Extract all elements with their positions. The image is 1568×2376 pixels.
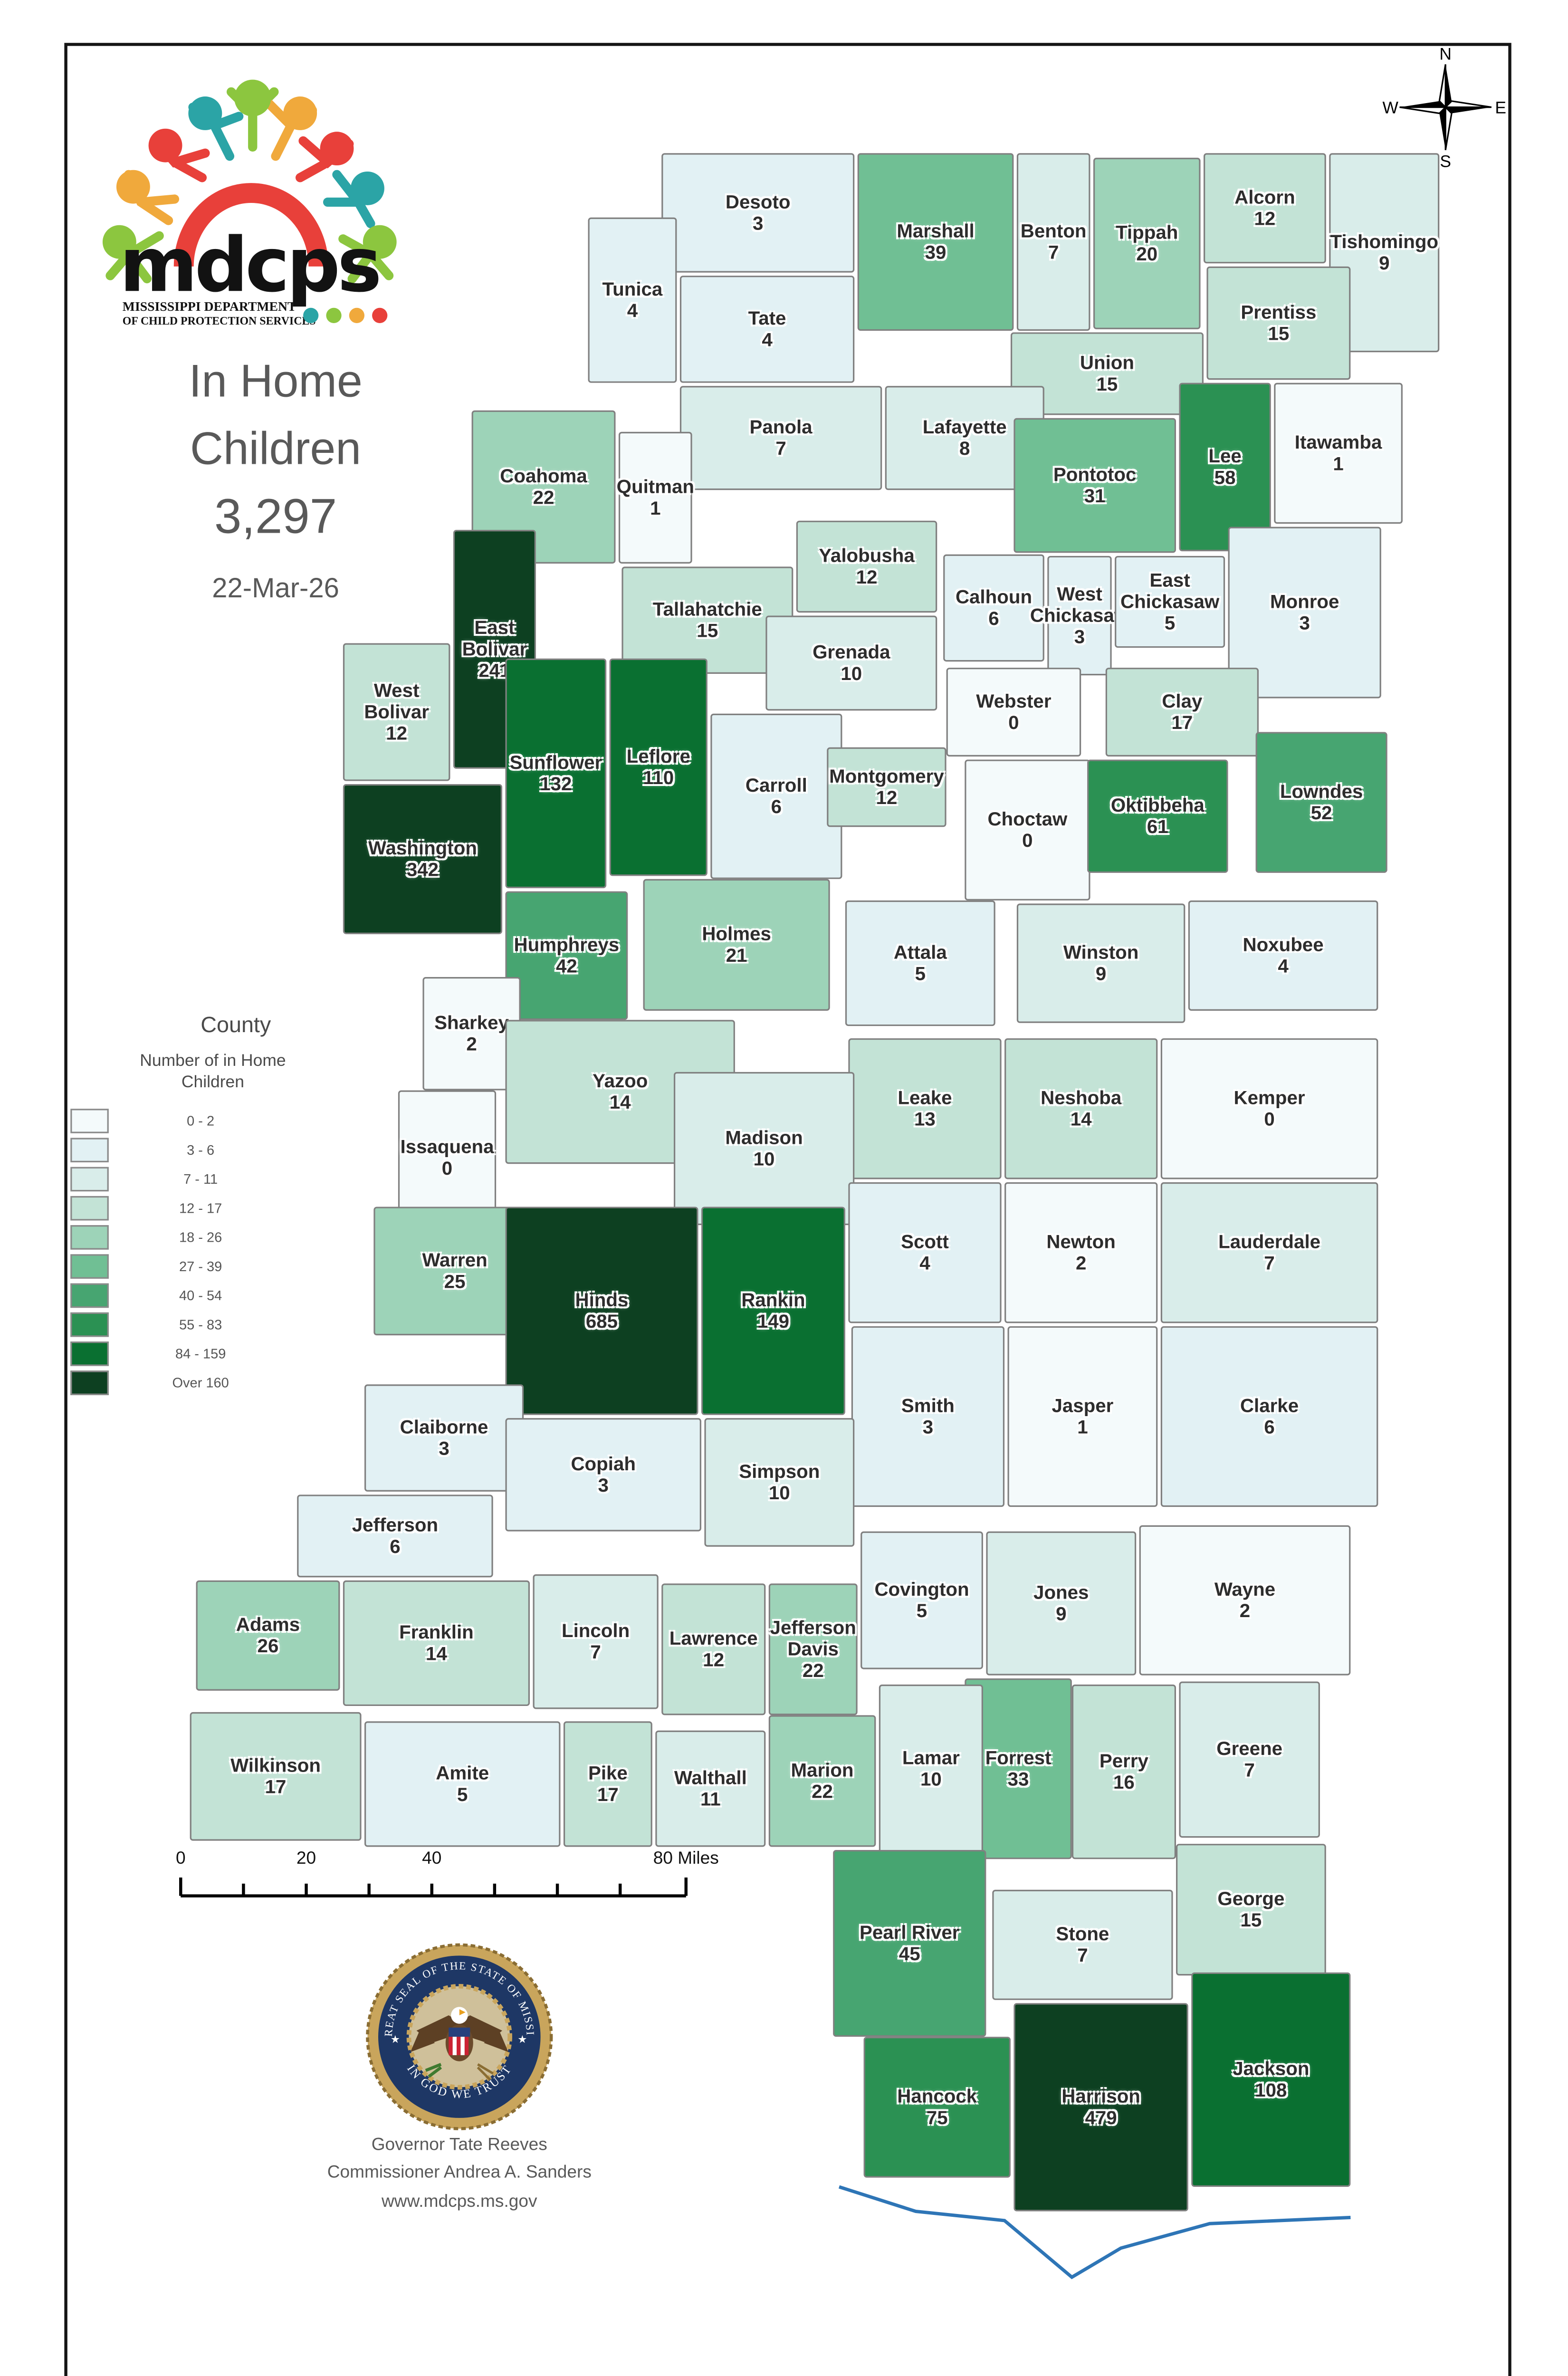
- county-label: Kemper0: [1234, 1087, 1305, 1130]
- county-label: Rankin149: [741, 1289, 805, 1332]
- county-name: Monroe: [1270, 591, 1339, 613]
- county-label: Sharkey2: [434, 1012, 509, 1055]
- county-value: 15: [1080, 374, 1134, 395]
- county-name: Neshoba: [1041, 1087, 1121, 1109]
- county-covington: Covington5: [860, 1532, 983, 1669]
- legend-row: 12 - 17: [67, 1194, 343, 1223]
- county-label: George15: [1217, 1888, 1284, 1931]
- county-lincoln: Lincoln7: [533, 1574, 658, 1709]
- county-value: 108: [1233, 2079, 1309, 2101]
- county-attala: Attala5: [845, 901, 995, 1026]
- legend-swatch-icon: [70, 1255, 109, 1279]
- county-name: Tishomingo: [1330, 231, 1439, 253]
- county-label: Webster0: [976, 690, 1051, 733]
- county-value: 3: [1270, 613, 1339, 634]
- county-east-chickasaw: East Chickasaw5: [1115, 556, 1225, 648]
- county-value: 0: [987, 830, 1067, 852]
- county-name: Oktibbeha: [1111, 795, 1205, 816]
- county-walthall: Walthall11: [655, 1731, 765, 1847]
- county-label: Tunica4: [602, 279, 663, 322]
- county-wayne: Wayne2: [1139, 1525, 1351, 1676]
- county-label: Carroll6: [746, 775, 807, 818]
- county-value: 6: [1240, 1417, 1299, 1438]
- county-label: Lauderdale7: [1218, 1231, 1320, 1274]
- county-value: 5: [436, 1784, 489, 1805]
- county-label: West Bolivar12: [344, 680, 449, 744]
- county-label: Forrest33: [985, 1747, 1052, 1790]
- county-neshoba: Neshoba14: [1004, 1038, 1157, 1179]
- county-value: 12: [819, 566, 915, 588]
- legend-subtitle-1: Number of in Home: [140, 1052, 286, 1071]
- scale-bar: 0 20 40 80 Miles: [172, 1850, 708, 1920]
- county-value: 14: [593, 1092, 648, 1113]
- county-label: Issaquena0: [400, 1136, 494, 1179]
- county-label: Sunflower132: [509, 752, 602, 795]
- county-label: East Chickasaw5: [1116, 570, 1224, 634]
- county-label: Walthall11: [674, 1767, 747, 1810]
- county-value: 4: [901, 1253, 949, 1274]
- county-clay: Clay17: [1106, 668, 1259, 757]
- county-label: Humphreys42: [514, 934, 620, 977]
- legend-class-label: Over 160: [109, 1375, 293, 1390]
- county-name: Amite: [436, 1763, 489, 1784]
- county-jefferson-davis: Jefferson Davis22: [769, 1583, 858, 1715]
- county-name: East Bolivar: [455, 617, 535, 660]
- county-label: Simpson10: [739, 1461, 820, 1504]
- legend-row: 0 - 2: [67, 1107, 343, 1136]
- scale-label-40: 40: [422, 1850, 441, 1868]
- county-name: Humphreys: [514, 934, 620, 956]
- county-noxubee: Noxubee4: [1188, 901, 1378, 1011]
- legend-row: 55 - 83: [67, 1310, 343, 1339]
- county-label: Holmes21: [702, 923, 771, 966]
- county-label: Newton2: [1046, 1231, 1115, 1274]
- scale-label-20: 20: [296, 1850, 316, 1868]
- county-name: Alcorn: [1234, 187, 1295, 208]
- county-newton: Newton2: [1004, 1182, 1157, 1323]
- county-name: Lowndes: [1280, 781, 1363, 803]
- county-west-chickasaw: West Chickasaw3: [1047, 556, 1111, 675]
- county-name: Wayne: [1214, 1579, 1275, 1600]
- county-value: 2: [434, 1034, 509, 1055]
- county-value: 42: [514, 956, 620, 977]
- county-label: Scott4: [901, 1231, 949, 1274]
- county-name: Jones: [1033, 1582, 1089, 1603]
- county-marshall: Marshall39: [858, 153, 1014, 331]
- county-name: Coahoma: [500, 466, 587, 487]
- county-name: Leflore: [627, 746, 690, 767]
- county-label: Yazoo14: [593, 1071, 648, 1113]
- county-lawrence: Lawrence12: [661, 1583, 765, 1715]
- county-jackson: Jackson108: [1191, 1973, 1350, 2187]
- county-label: Jefferson6: [352, 1514, 438, 1557]
- county-west-bolivar: West Bolivar12: [343, 643, 450, 781]
- county-value: 58: [1208, 467, 1241, 489]
- county-name: George: [1217, 1888, 1284, 1910]
- county-label: Covington5: [874, 1579, 969, 1622]
- county-value: 132: [509, 773, 602, 795]
- county-label: Grenada10: [813, 642, 890, 684]
- county-value: 17: [588, 1784, 628, 1805]
- county-name: Hinds: [575, 1289, 629, 1311]
- county-marion: Marion22: [769, 1715, 876, 1847]
- county-name: Lafayette: [923, 417, 1007, 438]
- county-label: Monroe3: [1270, 591, 1339, 634]
- county-label: Pontotoc31: [1053, 464, 1137, 507]
- county-label: Attala5: [894, 942, 947, 985]
- county-label: Choctaw0: [987, 809, 1067, 852]
- county-label: Calhoun6: [956, 586, 1032, 629]
- county-value: 0: [1234, 1109, 1305, 1130]
- county-name: Jefferson: [352, 1514, 438, 1536]
- county-leake: Leake13: [848, 1038, 1001, 1179]
- scale-label-0: 0: [176, 1850, 186, 1868]
- county-value: 10: [902, 1769, 960, 1790]
- county-issaquena: Issaquena0: [398, 1091, 496, 1226]
- county-label: Quitman1: [617, 476, 694, 519]
- county-label: Oktibbeha61: [1111, 795, 1205, 838]
- county-name: Leake: [898, 1087, 952, 1109]
- legend-row: 18 - 26: [67, 1223, 343, 1252]
- poster-page: mdcps MISSISSIPPI DEPARTMENT OF CHILD PR…: [0, 0, 1568, 2376]
- county-name: Washington: [368, 838, 477, 859]
- county-itawamba: Itawamba1: [1274, 383, 1403, 524]
- county-oktibbeha: Oktibbeha61: [1087, 759, 1228, 872]
- county-name: Tunica: [602, 279, 663, 300]
- legend-swatch-icon: [70, 1284, 109, 1308]
- county-name: Panola: [749, 417, 812, 438]
- county-label: Tallahatchie15: [653, 599, 762, 642]
- legend-class-label: 55 - 83: [109, 1317, 293, 1332]
- legend-swatch-icon: [70, 1313, 109, 1337]
- county-value: 10: [725, 1149, 803, 1170]
- county-name: Noxubee: [1243, 934, 1323, 956]
- county-madison: Madison10: [674, 1072, 854, 1225]
- county-name: Rankin: [741, 1289, 805, 1311]
- county-tate: Tate4: [680, 276, 854, 383]
- county-value: 22: [770, 1660, 856, 1681]
- state-seal: THE GREAT SEAL OF THE STATE OF MISSISSIP…: [364, 1942, 555, 2132]
- county-value: 12: [829, 787, 944, 808]
- county-label: Harrison479: [1061, 2086, 1140, 2128]
- county-quitman: Quitman1: [619, 432, 692, 564]
- county-label: Franklin14: [399, 1622, 474, 1665]
- county-name: Calhoun: [956, 586, 1032, 608]
- svg-text:★: ★: [391, 2033, 400, 2045]
- county-name: Perry: [1100, 1750, 1148, 1772]
- county-label: Clarke6: [1240, 1395, 1299, 1438]
- county-label: Washington342: [368, 838, 477, 881]
- county-label: Madison10: [725, 1127, 803, 1170]
- county-label: Lee58: [1208, 446, 1241, 489]
- legend-row: 7 - 11: [67, 1165, 343, 1194]
- county-value: 5: [874, 1600, 969, 1622]
- county-name: Wilkinson: [230, 1755, 321, 1776]
- county-label: Leake13: [898, 1087, 952, 1130]
- county-perry: Perry16: [1072, 1685, 1176, 1859]
- county-pearl-river: Pearl River45: [833, 1850, 986, 2037]
- county-label: Pike17: [588, 1763, 628, 1805]
- county-name: Yalobusha: [819, 545, 915, 566]
- legend-class-label: 18 - 26: [109, 1230, 293, 1245]
- county-label: Clay17: [1162, 690, 1202, 733]
- county-rankin: Rankin149: [701, 1207, 845, 1415]
- county-simpson: Simpson10: [704, 1418, 854, 1547]
- county-value: 3: [901, 1417, 955, 1438]
- county-name: Tate: [748, 308, 786, 329]
- county-name: Greene: [1216, 1738, 1282, 1760]
- scale-label-80: 80 Miles: [653, 1850, 719, 1868]
- county-value: 11: [674, 1789, 747, 1810]
- county-value: 15: [1241, 323, 1316, 345]
- county-humphreys: Humphreys42: [505, 891, 628, 1020]
- county-label: Desoto3: [726, 192, 791, 234]
- county-copiah: Copiah3: [505, 1418, 701, 1531]
- county-value: 6: [956, 608, 1032, 629]
- county-name: Benton: [1021, 220, 1087, 242]
- county-value: 3: [1030, 626, 1129, 648]
- county-label: Union15: [1080, 352, 1134, 395]
- county-name: Grenada: [813, 642, 890, 663]
- legend-class-label: 27 - 39: [109, 1259, 293, 1274]
- county-name: Hancock: [897, 2086, 977, 2107]
- county-name: Covington: [874, 1579, 969, 1600]
- county-lauderdale: Lauderdale7: [1161, 1182, 1378, 1323]
- county-value: 9: [1033, 1603, 1089, 1625]
- county-name: Union: [1080, 352, 1134, 374]
- county-stone: Stone7: [992, 1890, 1173, 2000]
- county-label: Lowndes52: [1280, 781, 1363, 824]
- county-label: Wayne2: [1214, 1579, 1275, 1622]
- county-label: Stone7: [1056, 1924, 1109, 1966]
- county-tunica: Tunica4: [588, 218, 677, 383]
- county-value: 2: [1046, 1253, 1115, 1274]
- county-value: 5: [1116, 613, 1224, 634]
- county-panola: Panola7: [680, 386, 882, 490]
- county-value: 10: [813, 663, 890, 684]
- county-value: 5: [894, 963, 947, 985]
- county-label: Panola7: [749, 417, 812, 460]
- county-label: Claiborne3: [400, 1417, 488, 1459]
- county-name: Jefferson Davis: [770, 1617, 856, 1660]
- footer-website: www.mdcps.ms.gov: [229, 2188, 689, 2216]
- county-label: Jones9: [1033, 1582, 1089, 1625]
- legend-row: 27 - 39: [67, 1252, 343, 1281]
- county-label: Tippah20: [1116, 222, 1178, 265]
- county-value: 52: [1280, 803, 1363, 824]
- county-name: Adams: [236, 1614, 300, 1636]
- county-value: 149: [741, 1311, 805, 1332]
- county-label: Montgomery12: [829, 766, 944, 808]
- county-name: Lee: [1208, 446, 1241, 467]
- legend-row: 3 - 6: [67, 1136, 343, 1165]
- county-label: Benton7: [1021, 220, 1087, 263]
- county-value: 26: [236, 1636, 300, 1657]
- county-name: Pike: [588, 1763, 628, 1784]
- county-adams: Adams26: [196, 1581, 340, 1691]
- county-calhoun: Calhoun6: [943, 555, 1044, 662]
- county-amite: Amite5: [364, 1721, 561, 1847]
- county-value: 16: [1100, 1772, 1148, 1793]
- county-clarke: Clarke6: [1161, 1326, 1378, 1507]
- county-label: Jackson108: [1233, 2058, 1309, 2101]
- county-name: Choctaw: [987, 809, 1067, 830]
- county-value: 15: [653, 620, 762, 642]
- county-label: Leflore110: [627, 746, 690, 788]
- county-name: Kemper: [1234, 1087, 1305, 1109]
- county-pike: Pike17: [564, 1721, 652, 1847]
- county-value: 3: [726, 213, 791, 234]
- footer-governor: Governor Tate Reeves: [229, 2132, 689, 2160]
- county-value: 685: [575, 1311, 629, 1332]
- county-grenada: Grenada10: [765, 616, 937, 711]
- county-name: Prentiss: [1241, 302, 1316, 323]
- county-label: Copiah3: [571, 1453, 636, 1496]
- legend-title: County: [129, 1014, 343, 1038]
- county-value: 22: [791, 1781, 854, 1802]
- county-value: 10: [739, 1483, 820, 1504]
- county-name: Pontotoc: [1053, 464, 1137, 485]
- county-name: East Chickasaw: [1116, 570, 1224, 613]
- county-leflore: Leflore110: [610, 659, 708, 876]
- county-label: Itawamba1: [1295, 432, 1382, 475]
- county-label: Greene7: [1216, 1738, 1282, 1781]
- footer-commissioner: Commissioner Andrea A. Sanders: [229, 2160, 689, 2188]
- county-value: 12: [344, 723, 449, 744]
- county-name: Tippah: [1116, 222, 1178, 243]
- county-value: 0: [400, 1158, 494, 1179]
- county-name: Yazoo: [593, 1071, 648, 1092]
- county-jefferson: Jefferson6: [297, 1495, 493, 1577]
- legend-class-label: 12 - 17: [109, 1201, 293, 1216]
- county-name: Carroll: [746, 775, 807, 796]
- legend-row: 40 - 54: [67, 1281, 343, 1310]
- county-washington: Washington342: [343, 784, 502, 934]
- county-lee: Lee58: [1179, 383, 1271, 551]
- county-benton: Benton7: [1017, 153, 1090, 331]
- county-name: Clarke: [1240, 1395, 1299, 1417]
- county-label: Amite5: [436, 1763, 489, 1805]
- county-name: Lawrence: [669, 1628, 758, 1649]
- county-kemper: Kemper0: [1161, 1038, 1378, 1179]
- county-label: Alcorn12: [1234, 187, 1295, 230]
- county-name: Newton: [1046, 1231, 1115, 1253]
- legend-swatch-icon: [70, 1196, 109, 1221]
- county-pontotoc: Pontotoc31: [1013, 418, 1176, 553]
- county-value: 1: [617, 498, 694, 519]
- county-montgomery: Montgomery12: [827, 747, 946, 827]
- county-wilkinson: Wilkinson17: [190, 1712, 362, 1841]
- county-name: West Chickasaw: [1030, 584, 1129, 626]
- legend-class-label: 7 - 11: [109, 1172, 293, 1187]
- county-value: 14: [399, 1643, 474, 1665]
- county-label: Prentiss15: [1241, 302, 1316, 345]
- county-value: 33: [985, 1769, 1052, 1790]
- county-value: 15: [1217, 1910, 1284, 1931]
- county-value: 61: [1111, 816, 1205, 838]
- county-value: 31: [1053, 486, 1137, 507]
- county-name: Pearl River: [860, 1922, 960, 1943]
- county-jones: Jones9: [986, 1532, 1136, 1676]
- county-name: Smith: [901, 1395, 955, 1417]
- county-name: Montgomery: [829, 766, 944, 787]
- county-scott: Scott4: [848, 1182, 1001, 1323]
- county-value: 3: [400, 1438, 488, 1459]
- county-hancock: Hancock75: [864, 2037, 1011, 2177]
- county-yalobusha: Yalobusha12: [796, 521, 937, 613]
- county-label: Warren25: [422, 1250, 487, 1293]
- legend-swatch-icon: [70, 1371, 109, 1396]
- legend-swatch-icon: [70, 1341, 109, 1366]
- county-value: 21: [702, 945, 771, 966]
- county-label: Marion22: [791, 1760, 854, 1802]
- county-value: 0: [976, 712, 1051, 734]
- county-value: 7: [1218, 1253, 1320, 1274]
- county-value: 6: [352, 1536, 438, 1557]
- legend-row: 84 - 159: [67, 1340, 343, 1369]
- county-choctaw: Choctaw0: [965, 759, 1090, 900]
- county-smith: Smith3: [851, 1326, 1004, 1507]
- county-label: Neshoba14: [1041, 1087, 1121, 1130]
- county-label: Pearl River45: [860, 1922, 960, 1964]
- county-value: 12: [1234, 208, 1295, 230]
- county-label: Coahoma22: [500, 466, 587, 508]
- county-name: Harrison: [1061, 2086, 1140, 2107]
- county-value: 6: [746, 796, 807, 818]
- county-value: 479: [1061, 2107, 1140, 2128]
- county-name: Lauderdale: [1218, 1231, 1320, 1253]
- county-name: Clay: [1162, 690, 1202, 712]
- county-jasper: Jasper1: [1008, 1326, 1158, 1507]
- county-label: Lafayette8: [923, 417, 1007, 460]
- county-label: Jefferson Davis22: [770, 1617, 856, 1681]
- county-name: Copiah: [571, 1453, 636, 1475]
- legend-rows: 0 - 23 - 67 - 1112 - 1718 - 2627 - 3940 …: [67, 1107, 343, 1398]
- county-alcorn: Alcorn12: [1204, 153, 1326, 263]
- county-tippah: Tippah20: [1093, 158, 1201, 329]
- county-value: 25: [422, 1271, 487, 1293]
- county-lowndes: Lowndes52: [1256, 732, 1387, 872]
- county-name: Holmes: [702, 923, 771, 945]
- county-name: Scott: [901, 1231, 949, 1253]
- county-value: 4: [1243, 956, 1323, 977]
- legend-swatch-icon: [70, 1138, 109, 1163]
- county-label: Tate4: [748, 308, 786, 351]
- county-george: George15: [1176, 1844, 1326, 1975]
- county-value: 4: [748, 329, 786, 351]
- county-name: Forrest: [985, 1747, 1052, 1769]
- county-value: 4: [602, 300, 663, 322]
- county-value: 22: [500, 487, 587, 508]
- county-name: West Bolivar: [344, 680, 449, 723]
- county-name: Warren: [422, 1250, 487, 1271]
- county-label: Jasper1: [1052, 1395, 1113, 1438]
- county-value: 8: [923, 438, 1007, 460]
- county-value: 1: [1295, 453, 1382, 475]
- footer-block: Governor Tate Reeves Commissioner Andrea…: [229, 2132, 689, 2216]
- county-lamar: Lamar10: [879, 1685, 983, 1853]
- county-value: 7: [1216, 1760, 1282, 1781]
- svg-text:★: ★: [517, 2033, 527, 2045]
- county-name: Jasper: [1052, 1395, 1113, 1417]
- county-value: 7: [1021, 242, 1087, 263]
- legend-class-label: 0 - 2: [109, 1113, 293, 1129]
- county-value: 7: [1056, 1945, 1109, 1966]
- county-greene: Greene7: [1179, 1681, 1319, 1838]
- county-label: Adams26: [236, 1614, 300, 1657]
- county-value: 14: [1041, 1109, 1121, 1130]
- county-name: Tallahatchie: [653, 599, 762, 620]
